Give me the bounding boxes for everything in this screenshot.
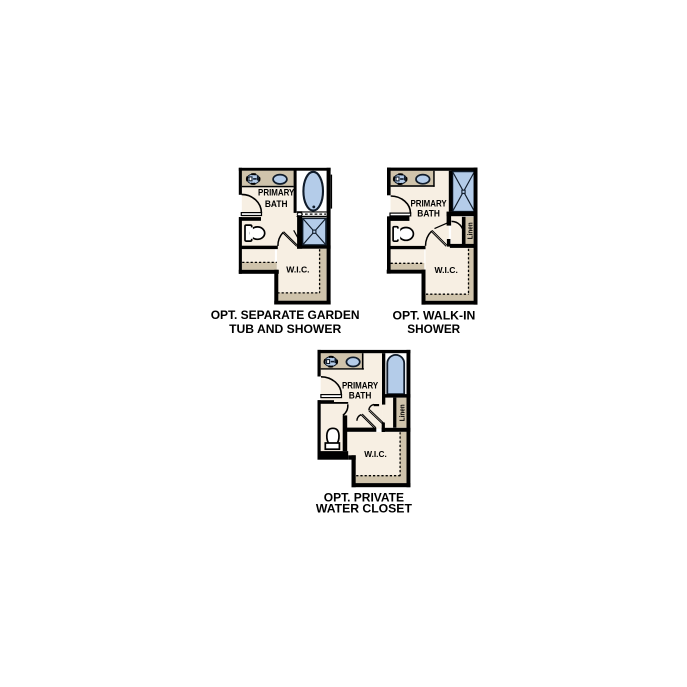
svg-text:PRIMARY: PRIMARY bbox=[410, 198, 446, 208]
svg-text:Linen: Linen bbox=[465, 222, 474, 239]
svg-text:W.I.C.: W.I.C. bbox=[286, 266, 309, 275]
svg-text:Linen: Linen bbox=[397, 404, 406, 421]
svg-text:TUB AND SHOWER: TUB AND SHOWER bbox=[229, 322, 341, 336]
svg-text:BATH: BATH bbox=[417, 209, 440, 219]
svg-text:BATH: BATH bbox=[349, 391, 372, 401]
svg-text:BATH: BATH bbox=[265, 199, 288, 209]
svg-text:WATER CLOSET: WATER CLOSET bbox=[316, 502, 412, 516]
svg-text:SHOWER: SHOWER bbox=[407, 322, 460, 336]
svg-text:OPT. SEPARATE GARDEN: OPT. SEPARATE GARDEN bbox=[211, 308, 360, 322]
svg-text:W.I.C.: W.I.C. bbox=[364, 450, 387, 459]
svg-text:W.I.C.: W.I.C. bbox=[435, 266, 458, 275]
svg-text:PRIMARY: PRIMARY bbox=[342, 380, 378, 390]
svg-text:PRIMARY: PRIMARY bbox=[258, 188, 294, 198]
svg-text:OPT. WALK-IN: OPT. WALK-IN bbox=[393, 309, 476, 323]
